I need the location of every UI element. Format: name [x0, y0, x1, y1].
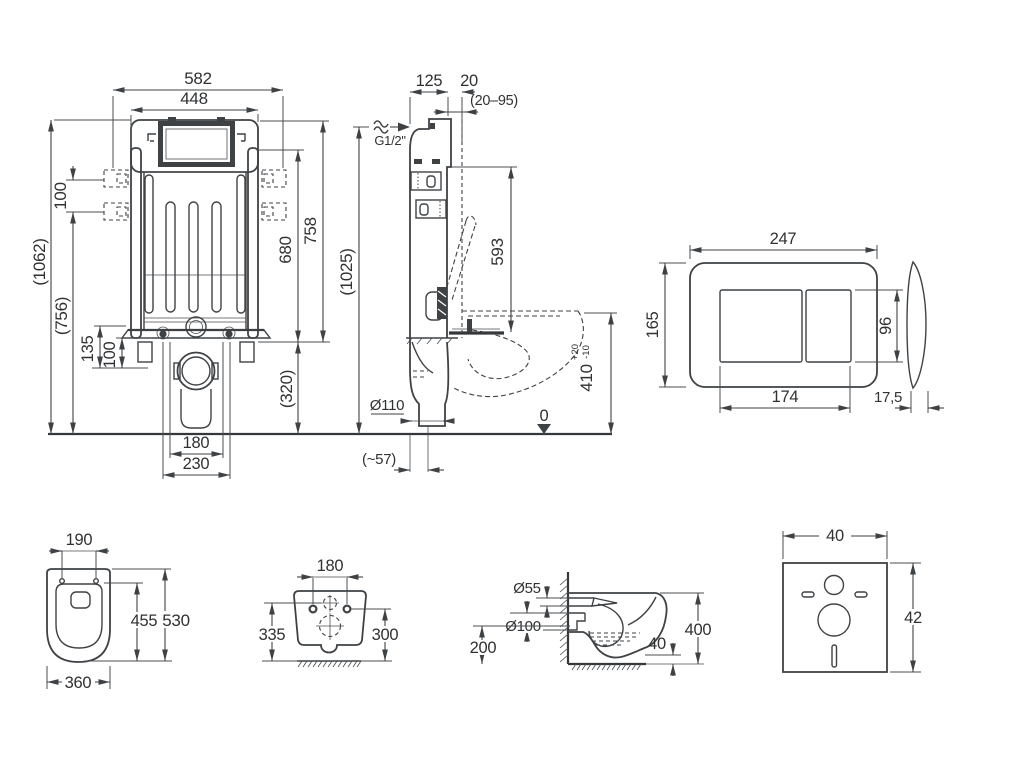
dim-label: 680 [276, 236, 295, 263]
dim-label: 165 [644, 312, 662, 339]
flush-button-large [720, 290, 802, 362]
dim-360: 360 [47, 666, 110, 692]
zero-level-marker: 0 [537, 407, 551, 434]
dim-label: Ø110 [370, 397, 404, 414]
dim-label: 0 [540, 407, 549, 425]
dim-165: 165 [644, 263, 686, 387]
dim-758: 758 [260, 121, 329, 342]
fixing-hole-left [310, 606, 317, 613]
dim-230: 230 [163, 455, 230, 475]
dim-label: 400 [685, 621, 712, 639]
technical-drawing-page: 582 448 (1062) (756) 100 135 [0, 0, 1024, 758]
dim-label: 125 [416, 72, 443, 90]
frame-rail-right [248, 148, 258, 338]
dim-57-offset: (~57) [362, 451, 444, 470]
view-frame-front: 582 448 (1062) (756) 100 135 [30, 69, 330, 479]
tolerance-plus: +20 [570, 344, 581, 360]
view-bowl-rear: 180 335 300 [257, 557, 400, 667]
dim-label: 360 [65, 674, 92, 692]
dim-label: (320) [277, 370, 296, 408]
dim-42-pad: 42 [890, 563, 928, 672]
dim-680: 680 [258, 150, 330, 342]
dim-label: 247 [770, 230, 797, 248]
dim-label: 180 [183, 434, 210, 452]
dim-diameter-110: Ø110 [370, 397, 451, 421]
clamp-hook-right-icon [237, 134, 245, 141]
dim-label: 180 [317, 557, 344, 575]
dim-400: 400 [660, 593, 715, 664]
dim-label: (756) [52, 297, 71, 335]
dim-180-outlet: 180 [170, 434, 223, 454]
flush-plate-body [690, 263, 877, 387]
dim-20-95: (20–95) [434, 93, 518, 112]
dim-label: 300 [372, 626, 399, 644]
pad-hole-center [818, 604, 850, 636]
flush-button-small [806, 290, 851, 362]
frame-foot-right [240, 342, 254, 362]
view-flush-plate: 247 165 96 174 17,5 [644, 230, 944, 413]
dim-label: 42 [904, 609, 922, 627]
dim-174: 174 [720, 366, 850, 413]
dim-455: 455 [104, 583, 158, 661]
dim-label: 335 [259, 626, 286, 644]
dim-label: 758 [301, 217, 320, 244]
dim-label: 40 [826, 527, 844, 545]
view-frame-side: G1/2" 125 20 (20–95) 593 (1025) [337, 72, 617, 472]
pad-hole-top [825, 576, 844, 595]
dim-label: 530 [162, 611, 189, 630]
dim-40-pad: 40 [783, 527, 887, 559]
dim-300: 300 [350, 609, 400, 661]
dim-1062: (1062) [30, 120, 131, 434]
fixing-hole-right [344, 606, 351, 613]
dim-label: 582 [184, 69, 211, 88]
clamp-hook-left-icon [148, 134, 156, 141]
dim-label: 190 [66, 531, 93, 549]
dim-label: Ø55 [513, 580, 540, 597]
dim-label: 200 [470, 639, 497, 657]
dim-diameter-100: Ø100 [503, 601, 568, 642]
view-sound-pad: 40 42 [783, 527, 928, 672]
water-inlet-g12: G1/2" [374, 121, 410, 148]
dim-label: (1062) [30, 238, 49, 285]
dim-125: 125 [410, 72, 448, 124]
dim-label: 20 [460, 72, 478, 90]
view-bowl-side: Ø55 Ø100 200 40 400 [466, 572, 715, 676]
frame-foot-left [138, 342, 152, 362]
dim-100-brackets: 100 [51, 166, 104, 212]
bowl-silhouette-dashed [444, 216, 583, 397]
frame-rail-left [131, 148, 141, 338]
dim-label: (20–95) [470, 93, 518, 109]
dim-label: (1025) [337, 248, 356, 295]
dim-label: 135 [79, 336, 97, 363]
technical-drawing-canvas: 582 448 (1062) (756) 100 135 [0, 0, 1024, 758]
dim-label: 17,5 [874, 389, 902, 406]
flush-plate-profile [907, 262, 926, 388]
flush-pipe-port [186, 317, 206, 337]
dim-label: 96 [877, 317, 895, 335]
dim-410-tol: 410 +20 -10 [570, 313, 617, 434]
dim-label: 410 [577, 364, 596, 391]
drain-elbow [178, 353, 215, 390]
drain-outlet [181, 389, 211, 428]
dim-label: 455 [131, 612, 158, 630]
dim-diameter-55: Ø55 [513, 580, 568, 618]
dim-label: 40 [648, 635, 666, 653]
dim-96: 96 [855, 290, 903, 362]
view-bowl-top: 190 455 530 360 [47, 531, 192, 692]
dim-320: (320) [277, 342, 298, 434]
dim-17-5: 17,5 [874, 389, 944, 413]
seat-outline [56, 584, 102, 648]
dim-label: 593 [488, 238, 507, 265]
dim-1025: (1025) [337, 127, 369, 434]
dim-label: G1/2" [374, 133, 406, 148]
dim-label: 100 [51, 182, 70, 209]
dim-label: 230 [183, 455, 210, 473]
dim-label: (~57) [362, 451, 396, 468]
dim-40-gap: 40 [645, 635, 681, 676]
dim-756: (756) [52, 212, 73, 434]
tolerance-minus: -10 [581, 345, 592, 359]
dim-label: 448 [180, 89, 207, 108]
dim-247: 247 [690, 230, 877, 259]
dim-label: 174 [772, 388, 799, 406]
dim-190: 190 [49, 531, 109, 578]
dim-label: 100 [101, 342, 119, 369]
pad-outline [783, 563, 887, 672]
